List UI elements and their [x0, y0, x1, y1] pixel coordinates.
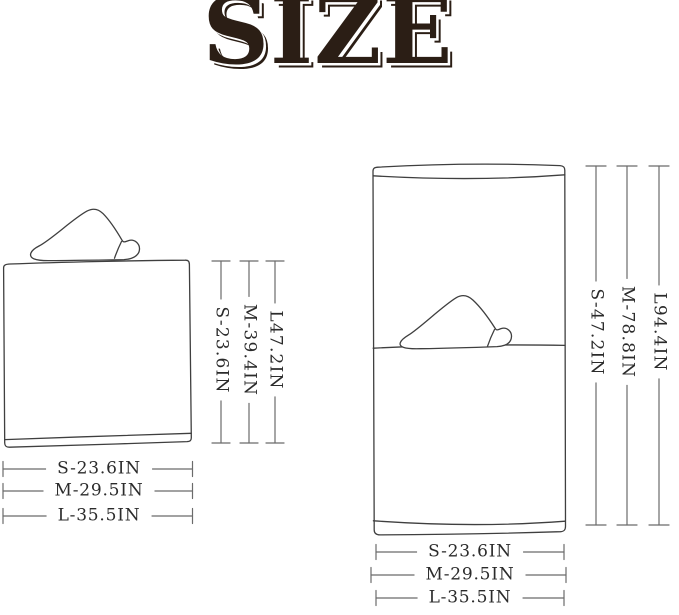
unfolded-height-label-m: M-78.8IN — [617, 279, 638, 385]
folded-width-label-m: M-29.5IN — [44, 482, 155, 501]
size-chart: SIZE — [0, 0, 679, 615]
unfolded-width-label-m: M-29.5IN — [415, 566, 526, 585]
folded-width-label-l: L-35.5IN — [47, 507, 152, 526]
unfolded-towel-illustration — [373, 164, 566, 535]
folded-towel-illustration — [4, 209, 192, 447]
unfolded-height-label-l: L94.4IN — [649, 285, 670, 378]
folded-height-label-l: L47.2IN — [265, 303, 286, 396]
folded-width-label-s: S-23.6IN — [46, 460, 152, 479]
unfolded-width-label-s: S-23.6IN — [417, 543, 523, 562]
folded-towel-hood — [31, 209, 140, 260]
unfolded-towel-body — [373, 164, 566, 535]
folded-height-label-s: S-23.6IN — [211, 299, 232, 400]
unfolded-width-label-l: L-35.5IN — [418, 589, 523, 608]
unfolded-height-label-s: S-47.2IN — [586, 281, 607, 382]
folded-towel-body — [4, 260, 192, 447]
folded-height-label-m: M-39.4IN — [239, 297, 260, 403]
